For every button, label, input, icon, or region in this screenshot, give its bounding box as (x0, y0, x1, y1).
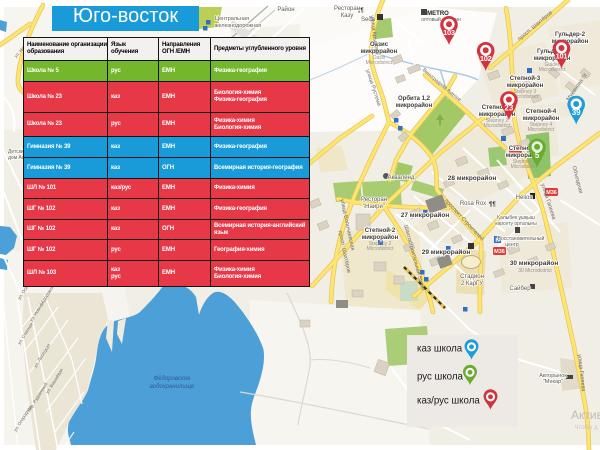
svg-text:Ресторан: Ресторан (361, 197, 387, 203)
svg-text:каз школа: каз школа (417, 344, 463, 355)
svg-text:микрорайон: микрорайон (396, 102, 433, 109)
svg-text:39: 39 (572, 108, 581, 117)
svg-text:водохранилище: водохранилище (150, 384, 195, 390)
svg-text:Степной-3: Степной-3 (510, 75, 541, 82)
svg-text:железнодорожная: железнодорожная (215, 23, 261, 29)
svg-text:Microdistrict: Microdistrict (528, 127, 555, 133)
svg-text:"Наири": "Наири" (363, 204, 385, 210)
svg-text:103: 103 (443, 28, 455, 37)
svg-text:Степной-2: Степной-2 (365, 227, 396, 234)
svg-text:2 КарГУ: 2 КарГУ (461, 281, 483, 287)
svg-text:Helios: Helios (516, 195, 533, 201)
svg-text:Microdistrict: Microdistrict (484, 123, 511, 129)
svg-text:Актив: Актив (571, 408, 600, 422)
svg-text:Сайбер: Сайбер (509, 285, 531, 292)
svg-text:29 микрорайон: 29 микрорайон (422, 248, 471, 256)
svg-text:М36: М36 (494, 249, 505, 255)
svg-text:102: 102 (480, 54, 492, 63)
svg-text:Акваленд: Акваленд (388, 175, 415, 181)
svg-text:Microdistrict: Microdistrict (539, 67, 566, 73)
svg-text:Фёдоровское: Фёдоровское (154, 376, 192, 382)
svg-text:Район: Район (277, 6, 294, 13)
svg-text:Rosa Rox: Rosa Rox (460, 201, 486, 207)
svg-text:27 микрорайон: 27 микрорайон (401, 211, 450, 219)
svg-text:центр: центр (505, 242, 519, 248)
svg-text:"Мекар": "Мекар" (543, 379, 563, 385)
svg-text:Стадион: Стадион (460, 274, 484, 280)
svg-text:Ресторан: Ресторан (334, 6, 360, 12)
svg-text:каз/рус школа: каз/рус школа (417, 396, 480, 407)
svg-text:Орбита 1,2: Орбита 1,2 (398, 95, 431, 102)
svg-text:Степной-4: Степной-4 (526, 108, 557, 115)
svg-text:30 Microdistrict: 30 Microdistrict (518, 268, 552, 274)
svg-text:рус школа: рус школа (417, 372, 463, 383)
svg-text:Microdistrict: Microdistrict (366, 60, 393, 66)
svg-text:101: 101 (556, 52, 568, 61)
svg-text:микрорайон: микрорайон (362, 234, 399, 241)
svg-text:микрорайон: микрорайон (507, 82, 544, 89)
svg-text:23: 23 (504, 103, 513, 112)
svg-text:30 микрорайон: 30 микрорайон (510, 259, 559, 267)
svg-text:5: 5 (535, 151, 540, 160)
svg-text:Чтобы д: Чтобы д (575, 425, 598, 431)
svg-text:28 микрорайон: 28 микрорайон (448, 174, 497, 182)
svg-text:Центральная: Центральная (215, 16, 249, 22)
svg-text:көрсету орталығы: көрсету орталығы (495, 221, 537, 227)
svg-text:Microdistrict: Microdistrict (511, 164, 538, 170)
svg-text:Microdistrict: Microdistrict (367, 246, 394, 252)
svg-text:Казу: Казу (341, 13, 353, 19)
svg-text:¶¶: ¶¶ (489, 202, 496, 208)
svg-text:микрорайон: микрорайон (523, 115, 560, 122)
svg-text:Гульдер-2: Гульдер-2 (555, 32, 586, 38)
svg-text:Восстановительный: Восстановительный (498, 235, 545, 242)
